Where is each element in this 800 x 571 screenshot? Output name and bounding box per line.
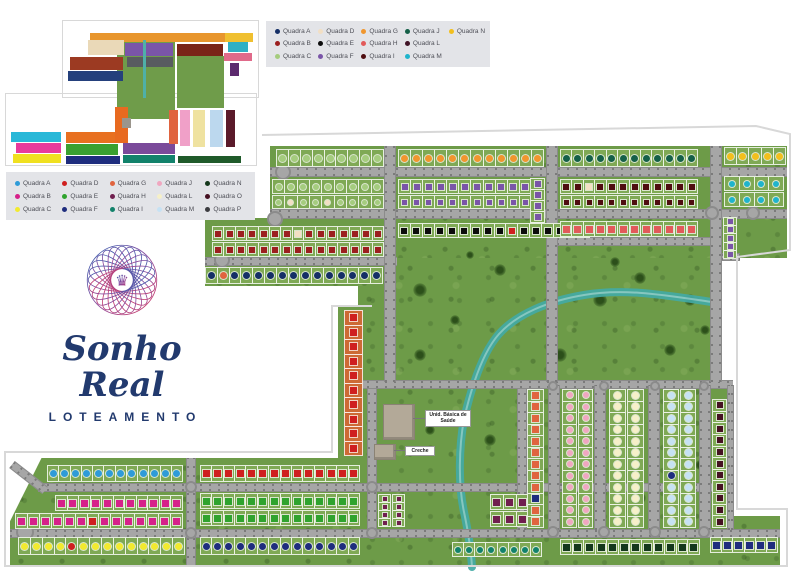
- lot-marker: [574, 544, 581, 551]
- lot: [122, 514, 134, 528]
- lot-marker: [21, 543, 28, 550]
- lot: [16, 514, 27, 528]
- lot-marker: [282, 543, 289, 550]
- lot-marker: [326, 272, 333, 279]
- lot-marker: [685, 449, 692, 456]
- lot: [531, 189, 544, 200]
- lot-marker: [50, 470, 57, 477]
- lot: [246, 243, 257, 256]
- lot-marker: [401, 228, 407, 234]
- lot-marker: [485, 228, 491, 234]
- lot-marker: [362, 184, 368, 190]
- legend-color-dot: [405, 41, 410, 46]
- lot-marker: [724, 542, 731, 549]
- lot-marker: [668, 495, 675, 502]
- lot-strip: [392, 494, 405, 527]
- lot: [223, 538, 234, 554]
- lot: [302, 511, 313, 525]
- lot-marker: [713, 542, 720, 549]
- legend-item: Quadra L: [157, 190, 198, 202]
- lot: [124, 496, 136, 510]
- lot: [610, 493, 625, 505]
- lot: [379, 518, 390, 526]
- lot-marker: [632, 426, 639, 433]
- lot: [755, 538, 766, 552]
- lot-marker: [632, 518, 639, 525]
- lot-marker: [272, 231, 278, 237]
- legend-item: Quadra E: [62, 190, 102, 202]
- lot: [563, 493, 576, 505]
- lot-marker: [284, 231, 290, 237]
- lot: [606, 540, 618, 554]
- lot-marker: [620, 184, 626, 190]
- lot-strip: [272, 179, 384, 194]
- lot-marker: [776, 153, 783, 160]
- lot: [345, 383, 362, 398]
- lot-marker: [685, 438, 692, 445]
- lot-marker: [267, 272, 274, 279]
- lot: [101, 496, 113, 510]
- lot-marker: [511, 200, 516, 205]
- lot: [563, 516, 576, 528]
- lot-marker: [249, 231, 255, 237]
- lot: [337, 243, 348, 256]
- lot-marker: [506, 516, 513, 523]
- lot-marker: [667, 544, 674, 551]
- lot-marker: [237, 498, 244, 505]
- legend-item-label: Quadra F: [326, 53, 353, 60]
- lot-marker: [488, 547, 494, 553]
- lot: [299, 268, 311, 283]
- lot-marker: [632, 200, 637, 205]
- legend-color-dot: [361, 41, 366, 46]
- lot-marker: [149, 518, 156, 525]
- lot: [201, 466, 211, 481]
- lot: [347, 268, 359, 283]
- lot-marker: [140, 470, 147, 477]
- lot: [229, 268, 241, 283]
- logo-title: Sonho Real: [22, 332, 222, 403]
- lot-strip: [724, 176, 784, 191]
- lot-marker: [510, 155, 517, 162]
- lot-marker: [758, 181, 764, 187]
- lot-marker: [139, 500, 146, 507]
- lot-marker: [621, 544, 628, 551]
- lot: [379, 502, 390, 510]
- lot: [325, 538, 336, 554]
- lot: [579, 390, 592, 401]
- lot-marker: [632, 392, 639, 399]
- lot: [664, 481, 678, 493]
- lot-marker: [632, 472, 639, 479]
- lot: [594, 196, 605, 208]
- legend-item: Quadra F: [62, 203, 102, 215]
- lot: [713, 480, 726, 492]
- lot-marker: [632, 438, 639, 445]
- lot: [288, 150, 300, 166]
- lot-marker: [237, 515, 244, 522]
- lot-marker: [455, 547, 461, 553]
- lot: [324, 150, 336, 166]
- lot-marker: [534, 155, 541, 162]
- lot-marker: [117, 470, 124, 477]
- lot-marker: [214, 543, 221, 550]
- lot-marker: [583, 507, 589, 513]
- lot: [58, 466, 69, 481]
- lot-marker: [620, 226, 627, 233]
- lot: [458, 180, 470, 193]
- lot-marker: [316, 515, 323, 522]
- lot-marker: [597, 155, 604, 162]
- lot: [284, 180, 296, 193]
- lot: [663, 180, 674, 193]
- lot-marker: [677, 155, 684, 162]
- lot: [160, 538, 172, 554]
- lot-strip: [452, 542, 542, 557]
- lot-marker: [291, 155, 298, 162]
- lot: [201, 494, 211, 508]
- lot: [563, 504, 576, 516]
- lot-marker: [151, 543, 158, 550]
- lot: [713, 492, 726, 504]
- legend-item-label: Quadra N: [213, 180, 241, 187]
- lot-marker: [564, 200, 569, 205]
- label-connector: [413, 418, 425, 419]
- lot-marker: [383, 513, 387, 517]
- lot-marker: [500, 547, 506, 553]
- lot: [348, 511, 359, 525]
- lot-marker: [668, 449, 675, 456]
- lot: [268, 538, 279, 554]
- lot-marker: [655, 544, 662, 551]
- lot-marker: [532, 518, 539, 525]
- lot: [528, 390, 543, 401]
- lot-marker: [567, 473, 573, 479]
- lot: [315, 227, 326, 240]
- lot: [87, 514, 99, 528]
- legend-color-dot: [110, 207, 115, 212]
- lot: [725, 148, 736, 164]
- lot-strip: [680, 389, 696, 528]
- lot-marker: [632, 403, 639, 410]
- lot: [579, 412, 592, 424]
- lot: [284, 196, 296, 208]
- lot-marker: [567, 496, 573, 502]
- lot: [268, 466, 279, 481]
- legend-color-dot: [62, 194, 67, 199]
- lot: [393, 510, 404, 518]
- lot-marker: [586, 544, 593, 551]
- lot-marker: [271, 498, 278, 505]
- lot-marker: [350, 416, 357, 423]
- lot-marker: [294, 515, 301, 522]
- lot-marker: [301, 200, 306, 205]
- lot: [349, 227, 360, 240]
- lot: [258, 243, 269, 256]
- lot-marker: [350, 445, 357, 452]
- lot: [326, 243, 337, 256]
- lot-marker: [284, 247, 290, 253]
- lot-marker: [583, 484, 589, 490]
- lot: [563, 458, 576, 470]
- lot: [664, 504, 678, 516]
- lot-marker: [668, 392, 675, 399]
- lot-marker: [259, 470, 266, 477]
- lot-strip: [344, 310, 363, 456]
- lot: [664, 470, 678, 482]
- lot-marker: [363, 247, 369, 253]
- lot: [640, 180, 651, 193]
- lot: [724, 225, 736, 233]
- lot-marker: [717, 402, 723, 408]
- lot-marker: [282, 498, 289, 505]
- lot-marker: [497, 228, 503, 234]
- lot-marker: [521, 228, 527, 234]
- lot: [302, 538, 313, 554]
- lot: [268, 511, 279, 525]
- lot-marker: [728, 252, 733, 257]
- lot-strip: [272, 195, 384, 209]
- lot: [754, 193, 769, 206]
- lot-marker: [532, 461, 539, 468]
- lot: [434, 180, 446, 193]
- lot-marker: [735, 542, 742, 549]
- lot: [474, 543, 485, 556]
- lot-marker: [567, 461, 573, 467]
- lot: [628, 504, 643, 516]
- lot-marker: [668, 507, 675, 514]
- lot: [768, 177, 783, 190]
- lot-marker: [128, 543, 135, 550]
- lot-marker: [729, 197, 735, 203]
- lot: [89, 538, 101, 554]
- lot-marker: [248, 543, 255, 550]
- lot: [664, 447, 678, 459]
- lot: [579, 470, 592, 482]
- lot-marker: [461, 228, 467, 234]
- lot-marker: [305, 498, 312, 505]
- lot: [503, 512, 516, 526]
- lot-marker: [597, 184, 603, 190]
- lot: [348, 494, 359, 508]
- public-building: [374, 444, 396, 460]
- legend-item: Quadra J: [405, 26, 442, 37]
- lot: [291, 538, 302, 554]
- lot-marker: [54, 518, 61, 525]
- lot: [531, 150, 543, 166]
- lot-marker: [532, 449, 539, 456]
- lot: [345, 311, 362, 325]
- lot-marker: [614, 461, 621, 468]
- lot-marker: [352, 247, 358, 253]
- lot: [664, 540, 676, 554]
- lot: [470, 150, 482, 166]
- lot-marker: [631, 155, 638, 162]
- lot-marker: [679, 544, 686, 551]
- lot-marker: [327, 155, 334, 162]
- lot-marker: [583, 438, 589, 444]
- lot: [768, 193, 783, 206]
- lot: [754, 177, 769, 190]
- lot: [664, 390, 678, 401]
- lot-marker: [271, 543, 278, 550]
- lot-marker: [237, 470, 244, 477]
- lot: [664, 424, 678, 436]
- lot-marker: [175, 543, 182, 550]
- lot-strip: [398, 149, 544, 167]
- lot-marker: [349, 272, 356, 279]
- lot: [115, 466, 126, 481]
- legend-item: Quadra P: [205, 203, 246, 215]
- lot-marker: [677, 184, 683, 190]
- lot-marker: [523, 200, 528, 205]
- lot: [664, 401, 678, 413]
- lot: [629, 196, 640, 208]
- lot: [651, 180, 662, 193]
- legend-color-dot: [405, 54, 410, 59]
- lot-marker: [162, 470, 169, 477]
- lot: [713, 446, 726, 458]
- lot: [653, 540, 665, 554]
- lot: [371, 150, 383, 166]
- lot-marker: [717, 495, 723, 501]
- legend-color-dot: [15, 181, 20, 186]
- lot-marker: [567, 438, 573, 444]
- lot-strip: [200, 493, 360, 509]
- lot-marker: [362, 155, 369, 162]
- lot-marker: [614, 438, 621, 445]
- lot-strip: [560, 221, 698, 237]
- lot-marker: [125, 518, 132, 525]
- lot-marker: [328, 470, 335, 477]
- lot-marker: [532, 438, 539, 445]
- lot-marker: [303, 155, 310, 162]
- lot: [563, 424, 576, 436]
- lot: [136, 496, 148, 510]
- lot-marker: [337, 184, 343, 190]
- lot-strip: [212, 226, 384, 241]
- lot: [410, 180, 422, 193]
- lot: [446, 196, 458, 208]
- lot-marker: [519, 516, 526, 523]
- lot: [713, 434, 726, 446]
- lot-marker: [33, 543, 40, 550]
- lot: [147, 496, 159, 510]
- lot-marker: [350, 430, 357, 437]
- lot-marker: [583, 496, 589, 502]
- lot-marker: [486, 184, 492, 190]
- lot-marker: [466, 547, 472, 553]
- lot-marker: [632, 184, 638, 190]
- legend-item: Quadra I: [361, 51, 398, 62]
- lot: [617, 150, 628, 166]
- lot: [280, 466, 291, 481]
- lot: [681, 493, 695, 505]
- lot-strip: [712, 399, 727, 528]
- lot-marker: [678, 200, 683, 205]
- lot: [245, 538, 256, 554]
- lot-marker: [295, 247, 301, 253]
- lot: [519, 543, 530, 556]
- lot-marker: [493, 499, 500, 506]
- legend-item-label: Quadra O: [213, 193, 242, 200]
- lot: [410, 224, 422, 237]
- lot-marker: [316, 470, 323, 477]
- lot-marker: [614, 403, 621, 410]
- legend-item-label: Quadra N: [457, 28, 485, 35]
- lot: [201, 511, 211, 525]
- lot-marker: [80, 543, 87, 550]
- lot-marker: [493, 516, 500, 523]
- lot: [628, 412, 643, 424]
- lot-marker: [350, 543, 357, 550]
- lot-marker: [295, 231, 301, 237]
- lot: [663, 222, 674, 236]
- lot-marker: [609, 200, 614, 205]
- lot-marker: [437, 228, 443, 234]
- lot: [371, 196, 383, 208]
- lot: [470, 196, 482, 208]
- legend-item: Quadra G: [110, 177, 151, 189]
- lot: [681, 401, 695, 413]
- lot-marker: [237, 543, 244, 550]
- legend-color-dot: [157, 181, 162, 186]
- lot-marker: [341, 231, 347, 237]
- lot-strip: [200, 537, 360, 555]
- legend-item: Quadra B: [15, 190, 55, 202]
- legend-color-dot: [157, 194, 162, 199]
- lot-marker: [383, 505, 387, 509]
- lot: [379, 510, 390, 518]
- lot: [90, 496, 102, 510]
- lot-marker: [575, 184, 581, 190]
- lot: [280, 494, 291, 508]
- lot: [606, 196, 617, 208]
- lot-strip: [578, 389, 593, 528]
- lot: [736, 148, 748, 164]
- lot: [629, 150, 640, 166]
- lot-marker: [238, 231, 244, 237]
- lot-marker: [689, 184, 695, 190]
- lot-marker: [685, 495, 692, 502]
- lot: [528, 424, 543, 436]
- lot-marker: [614, 495, 621, 502]
- lot: [75, 514, 87, 528]
- lot-marker: [259, 543, 266, 550]
- legend-color-dot: [449, 29, 454, 34]
- lot: [291, 494, 302, 508]
- lot-marker: [717, 414, 723, 420]
- lot-marker: [350, 470, 357, 477]
- lot-strip: [723, 217, 737, 259]
- lot-marker: [567, 427, 573, 433]
- lot-marker: [717, 449, 723, 455]
- lot-marker: [609, 184, 615, 190]
- lot-marker: [397, 513, 401, 517]
- lot: [529, 224, 541, 237]
- lot: [63, 514, 75, 528]
- lot-marker: [498, 184, 504, 190]
- lot-marker: [567, 484, 573, 490]
- lot-marker: [462, 200, 467, 205]
- lot: [610, 390, 625, 401]
- lot-marker: [575, 200, 580, 205]
- legend-item-label: Quadra C: [23, 206, 51, 213]
- lot: [583, 540, 595, 554]
- lot-marker: [717, 472, 723, 478]
- legend-top: Quadra AQuadra BQuadra CQuadra DQuadra E…: [266, 21, 490, 67]
- legend-item-label: Quadra H: [118, 193, 146, 200]
